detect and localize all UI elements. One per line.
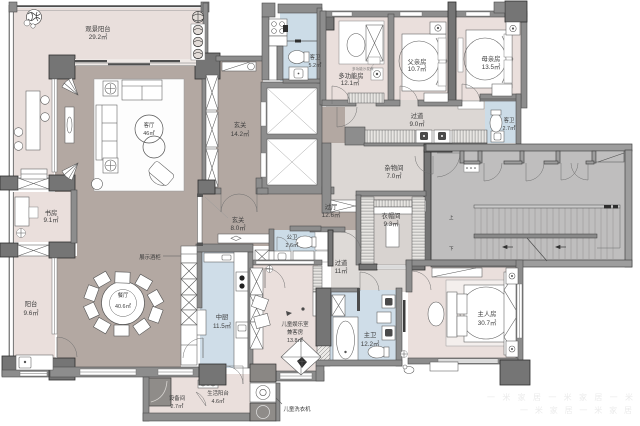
svg-text:9.6㎡: 9.6㎡ bbox=[23, 308, 39, 317]
svg-text:客卫: 客卫 bbox=[310, 53, 321, 61]
svg-text:29.2㎡: 29.2㎡ bbox=[89, 32, 108, 41]
svg-text:2.7㎡: 2.7㎡ bbox=[171, 402, 184, 410]
svg-text:多功能房: 多功能房 bbox=[338, 71, 363, 80]
svg-text:2.7㎡: 2.7㎡ bbox=[503, 124, 516, 132]
svg-text:主卫: 主卫 bbox=[364, 330, 377, 339]
svg-text:13.8㎡: 13.8㎡ bbox=[287, 336, 303, 344]
svg-text:杂物间: 杂物间 bbox=[385, 163, 404, 172]
svg-text:8.0㎡: 8.0㎡ bbox=[230, 223, 246, 232]
svg-text:儿童洗衣机: 儿童洗衣机 bbox=[284, 405, 312, 413]
svg-text:玄关: 玄关 bbox=[232, 215, 245, 224]
svg-text:9.1㎡: 9.1㎡ bbox=[43, 215, 59, 224]
svg-text:主人房: 主人房 bbox=[478, 309, 497, 318]
svg-text:中厨: 中厨 bbox=[216, 312, 229, 321]
svg-text:13.5㎡: 13.5㎡ bbox=[482, 62, 501, 71]
svg-text:母亲房: 母亲房 bbox=[482, 54, 501, 63]
svg-text:公卫: 公卫 bbox=[287, 234, 298, 241]
svg-text:儿童娱乐室: 儿童娱乐室 bbox=[282, 320, 310, 328]
svg-text:设备间: 设备间 bbox=[169, 394, 185, 402]
svg-text:过道: 过道 bbox=[335, 258, 348, 267]
svg-text:30.7㎡: 30.7㎡ bbox=[478, 318, 497, 327]
svg-text:兼客房: 兼客房 bbox=[287, 328, 303, 336]
svg-text:阳台: 阳台 bbox=[25, 299, 38, 308]
svg-text:2.6㎡: 2.6㎡ bbox=[286, 241, 299, 249]
svg-text:11㎡: 11㎡ bbox=[335, 266, 349, 275]
svg-text:40.6㎡: 40.6㎡ bbox=[115, 302, 131, 310]
svg-text:展示酒柜: 展示酒柜 bbox=[139, 253, 161, 261]
svg-text:衣帽间: 衣帽间 bbox=[382, 211, 401, 220]
svg-text:12.6㎡: 12.6㎡ bbox=[322, 210, 341, 219]
svg-text:父亲房: 父亲房 bbox=[408, 57, 427, 66]
svg-text:玄关: 玄关 bbox=[234, 120, 247, 129]
svg-text:客厅: 客厅 bbox=[144, 121, 155, 129]
svg-text:14.2㎡: 14.2㎡ bbox=[231, 129, 250, 138]
svg-text:客卫: 客卫 bbox=[504, 116, 515, 124]
svg-text:10.7㎡: 10.7㎡ bbox=[408, 64, 427, 73]
svg-text:过厅: 过厅 bbox=[325, 202, 338, 211]
svg-text:书房: 书房 bbox=[45, 208, 58, 217]
svg-text:生活阳台: 生活阳台 bbox=[207, 389, 229, 397]
svg-text:12.2㎡: 12.2㎡ bbox=[361, 339, 380, 348]
svg-text:7.0㎡: 7.0㎡ bbox=[386, 171, 402, 180]
svg-text:餐厅: 餐厅 bbox=[118, 291, 129, 299]
svg-text:上: 上 bbox=[449, 214, 454, 220]
svg-text:多功能沙发床: 多功能沙发床 bbox=[352, 66, 374, 71]
svg-text:46㎡: 46㎡ bbox=[143, 129, 155, 137]
svg-text:11.5㎡: 11.5㎡ bbox=[213, 321, 232, 330]
svg-text:一 米 家 居 一 米 家 居 一 米: 一 米 家 居 一 米 家 居 一 米 bbox=[487, 392, 633, 402]
svg-text:9.3㎡: 9.3㎡ bbox=[383, 219, 399, 228]
svg-text:观景阳台: 观景阳台 bbox=[85, 24, 110, 33]
svg-text:12.1㎡: 12.1㎡ bbox=[341, 78, 360, 87]
svg-text:4.6㎡: 4.6㎡ bbox=[212, 397, 225, 405]
svg-text:过道: 过道 bbox=[411, 111, 424, 120]
svg-text:一 米 家 居 一 米 家 居: 一 米 家 居 一 米 家 居 bbox=[520, 405, 632, 415]
svg-text:5.2㎡: 5.2㎡ bbox=[309, 61, 322, 69]
svg-text:9.0㎡: 9.0㎡ bbox=[409, 119, 425, 128]
